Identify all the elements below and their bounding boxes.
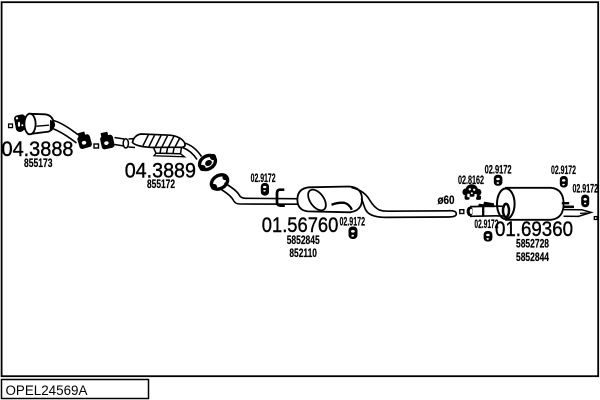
svg-text:855172: 855172 [147, 177, 175, 191]
svg-text:5852728: 5852728 [516, 236, 549, 250]
svg-text:02.9172: 02.9172 [340, 216, 366, 228]
svg-text:855173: 855173 [24, 156, 53, 170]
svg-text:OPEL24569A: OPEL24569A [6, 383, 88, 398]
svg-text:ø60: ø60 [438, 195, 455, 207]
svg-text:02.9172: 02.9172 [251, 173, 276, 185]
svg-text:02.8162: 02.8162 [458, 175, 484, 187]
svg-text:5852844: 5852844 [516, 250, 549, 264]
svg-text:5852845: 5852845 [287, 233, 320, 247]
svg-text:02.9172: 02.9172 [485, 164, 512, 176]
svg-text:02.9172: 02.9172 [474, 219, 498, 231]
svg-text:02.9172: 02.9172 [573, 184, 599, 196]
svg-text:852110: 852110 [289, 246, 317, 260]
svg-text:02.9172: 02.9172 [551, 165, 576, 177]
